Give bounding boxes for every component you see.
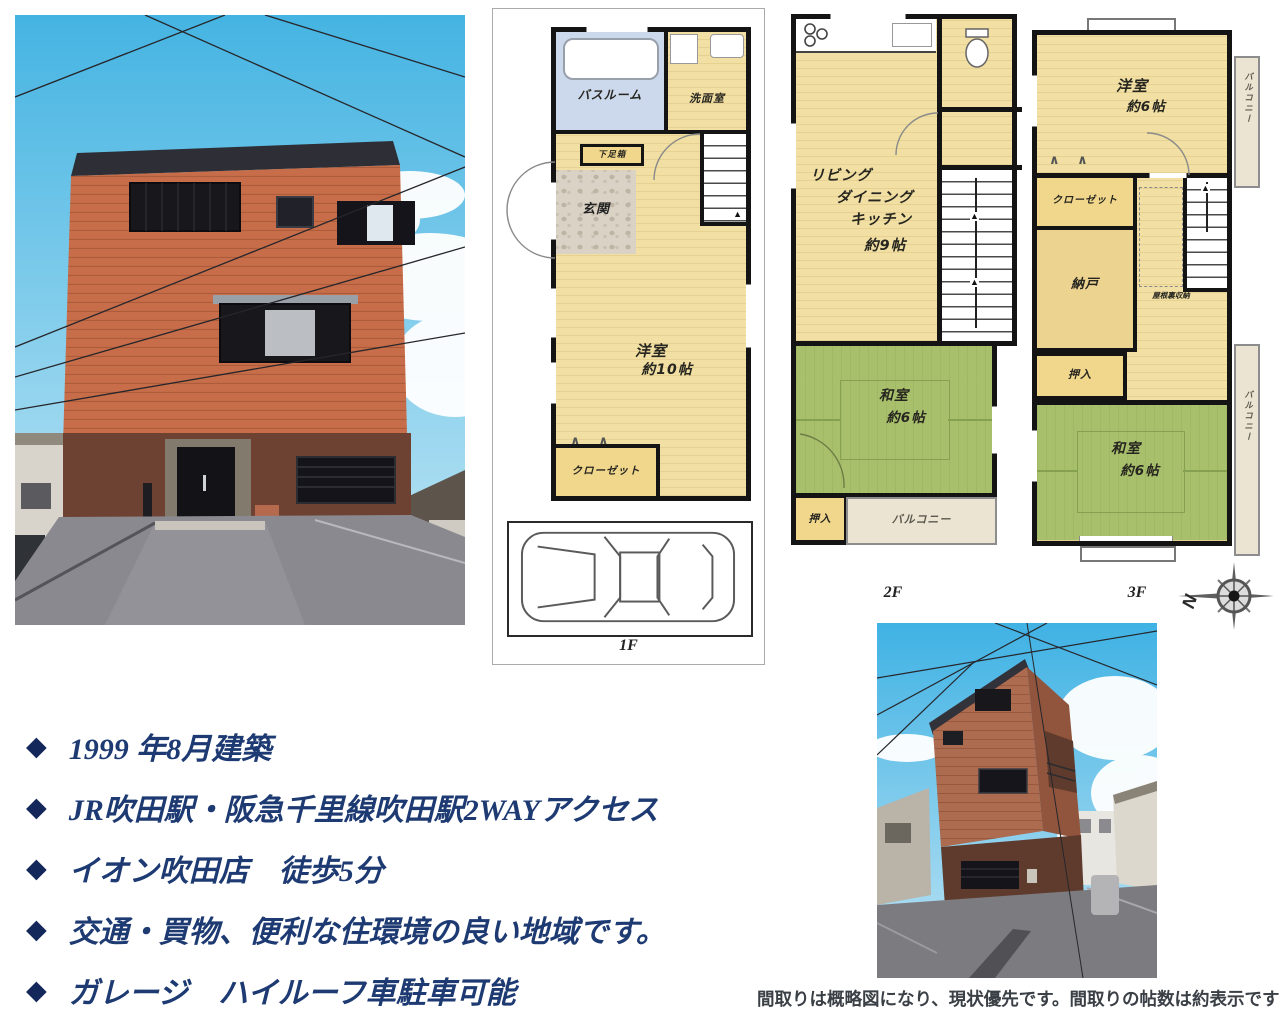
room-japanese-3f: 和室 約6帖 [1037,400,1227,540]
feature-text: JR吹田駅・阪急千里線吹田駅2WAYアクセス [69,785,659,829]
room-label-washroom: 洗面室 [668,92,746,106]
kitchen-sink-icon [892,23,932,47]
list-item: ◆ ガレージ ハイルーフ車駐車可能 [26,970,666,1010]
diamond-bullet-icon: ◆ [26,733,47,760]
stairs-arrow-icon: ▲ [1201,184,1210,193]
stairs-arrow-icon: ▲ [733,210,742,219]
kitchen-counter [796,19,936,53]
shoe-cabinet: 下足箱 [580,144,644,166]
balcony-3f-lower: バルコニー [1234,344,1260,556]
room-closet-3f: クローゼット [1037,178,1137,230]
room-label-oshiire-2f: 押入 [796,498,844,540]
list-item: ◆ 交通・買物、便利な住環境の良い地域です。 [26,909,666,949]
room-label-balcony-3f-upper: バルコニー [1242,72,1253,125]
property-flyer: バスルーム 洗面室 下足箱 玄関 ▲ 洋室 約10帖 [0,0,1280,1010]
diamond-bullet-icon: ◆ [26,794,47,821]
window-gap [1032,430,1037,482]
room-label-balcony-3f-lower: バルコニー [1242,390,1253,443]
stove-icon [800,21,834,49]
room-label-western: 洋室 [556,342,746,361]
bathtub-icon [563,38,659,80]
window-gap [791,123,796,189]
floorplan-1f-outline: バスルーム 洗面室 下足箱 玄関 ▲ 洋室 約10帖 [551,27,751,501]
room-label-closet-3f: クローゼット [1037,178,1133,224]
door-swing-icon [798,432,846,490]
entrance-door-swing-icon [498,160,556,260]
diamond-bullet-icon: ◆ [26,916,47,943]
window-gap [586,27,648,32]
window-gap [551,288,556,338]
floorplan-1f: バスルーム 洗面室 下足箱 玄関 ▲ 洋室 約10帖 [492,8,765,665]
feature-text: 交通・買物、便利な住環境の良い地域です。 [69,907,666,951]
door-swing-icon [652,132,702,182]
room-label-balcony-2f: バルコニー [848,499,995,541]
room-label-western-size: 約10帖 [572,362,762,380]
road [15,515,465,625]
diamond-bullet-icon: ◆ [26,977,47,1004]
room-label-shoe-cabinet: 下足箱 [583,147,641,163]
room-label-ldk: リビング ダイニング キッチン 約9帖 [810,167,914,256]
room-washroom: 洗面室 [668,32,746,134]
room-label-japanese-3f: 和室 [1031,441,1221,459]
stairs-divider [975,178,977,328]
wall [937,107,1022,112]
room-label-living: リビング [810,167,914,185]
stairs-arrow-icon: ▲ [970,278,979,287]
floor-label-3f: 3F [1112,584,1162,602]
feature-list: ◆ 1999 年8月建築 ◆ JR吹田駅・阪急千里線吹田駅2WAYアクセス ◆ … [26,726,666,1010]
main-house-photo [15,15,465,625]
sink-icon [710,34,744,58]
entrance-door-gap [551,182,556,240]
window-gap [746,284,751,348]
floor-label-1f: 1F [493,637,764,655]
room-japanese-2f: 和室 約6帖 [791,341,997,498]
list-item: ◆ イオン吹田店 徒歩5分 [26,848,666,888]
room-label-kitchen: キッチン [810,211,914,229]
door-swing-icon [894,111,940,157]
washer-space-icon [670,34,698,64]
floor-label-2f: 2F [868,584,918,602]
window-gap [1079,536,1173,541]
main-house-photo-illustration [15,15,465,625]
compass-north-label: N [1178,591,1201,610]
attic-ladder-outline [1139,187,1183,287]
toilet-icon [962,27,992,71]
feature-text: ガレージ ハイルーフ車駐車可能 [69,968,516,1010]
window-gap [830,14,906,19]
diamond-bullet-icon: ◆ [26,855,47,882]
secondary-house-photo-illustration [877,623,1157,978]
list-item: ◆ JR吹田駅・阪急千里線吹田駅2WAYアクセス [26,787,666,827]
room-label-japanese-size-3f: 約6帖 [1045,463,1235,480]
stairs-2f: ▲ ▲ [942,170,1012,341]
room-label-closet-1f: クローゼット [556,448,656,494]
room-label-entrance: 玄関 [556,202,636,218]
list-item: ◆ 1999 年8月建築 [26,726,666,766]
room-label-western-size-3f: 約6帖 [1051,99,1241,116]
room-label-storage: 納戸 [1037,230,1133,340]
floorplan-2f: ▲ ▲ リビング ダイニング キッチン 約9帖 和室 約6帖 [791,14,1021,579]
disclaimer-text: 間取りは概略図になり、現状優先です。間取りの帖数は約表示です [757,986,1280,1010]
feature-text: 1999 年8月建築 [69,724,272,768]
room-closet-1f: クローゼット [556,444,660,496]
secondary-house-photo [877,623,1157,978]
room-entrance: 玄関 [556,170,636,254]
door-swing-icon [1145,131,1191,177]
room-label-japanese-2f: 和室 [796,388,992,406]
feature-text: イオン吹田店 徒歩5分 [69,846,384,890]
window-gap [992,406,997,454]
floorplan-3f-outline: 洋室 約6帖 ∧ ∧ クローゼット 納戸 ▲ 屋根裏収納 [1032,30,1232,546]
compass-rose: N [1172,556,1276,634]
garage-car-box [507,521,753,637]
room-label-japanese-size-2f: 約6帖 [808,410,1004,427]
floorplan-3f: 洋室 約6帖 ∧ ∧ クローゼット 納戸 ▲ 屋根裏収納 [1032,14,1272,562]
door-gap [1149,173,1187,178]
house-facade [63,141,415,545]
room-oshiire-2f: 押入 [791,493,849,545]
bay-window [1080,546,1176,562]
stairs-3f: ▲ [1183,178,1227,292]
room-toilet [946,23,1012,107]
room-oshiire-3f: 押入 [1037,352,1127,400]
floorplan-2f-upper: ▲ ▲ リビング ダイニング キッチン 約9帖 [791,14,1017,346]
room-label-western-3f: 洋室 [1037,77,1227,96]
window-gap [1032,75,1037,127]
room-label-dining: ダイニング [810,189,914,207]
room-label-bathroom: バスルーム [556,88,664,103]
window-gap [551,362,556,404]
room-storage: 納戸 [1037,230,1137,352]
room-label-ldk-size: 約9帖 [810,237,914,255]
room-bathroom: バスルーム [556,32,668,134]
folding-door-icon: ∧ ∧ [1049,153,1089,169]
room-label-attic: 屋根裏収納 [1129,291,1213,300]
stairs-arrow-icon: ▲ [970,212,979,221]
room-label-oshiire-3f: 押入 [1037,356,1123,394]
stairs-1f: ▲ [700,134,746,226]
compass-icon: N [1172,556,1276,634]
car-top-view-icon [509,523,747,631]
balcony-2f: バルコニー [846,497,997,545]
balcony-3f-upper: バルコニー [1234,56,1260,188]
